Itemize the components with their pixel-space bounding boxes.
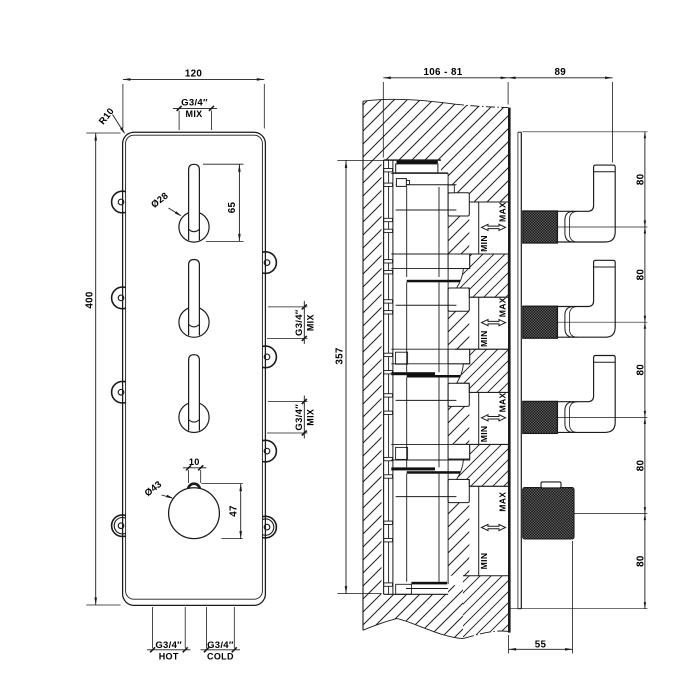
svg-text:357: 357 — [334, 347, 345, 364]
svg-text:89: 89 — [555, 67, 567, 78]
svg-text:MIN: MIN — [479, 553, 489, 570]
svg-text:55: 55 — [535, 640, 547, 651]
svg-text:MAX: MAX — [498, 202, 508, 222]
svg-text:80: 80 — [635, 364, 646, 376]
svg-text:MAX: MAX — [498, 492, 508, 512]
svg-text:106 - 81: 106 - 81 — [423, 67, 462, 78]
svg-text:MIN: MIN — [479, 330, 489, 347]
svg-text:G3/4″: G3/4″ — [294, 309, 305, 336]
svg-text:80: 80 — [635, 173, 646, 185]
svg-text:120: 120 — [185, 69, 202, 80]
svg-text:MIN: MIN — [479, 426, 489, 443]
svg-text:HOT: HOT — [159, 652, 179, 662]
svg-text:G3/4″: G3/4″ — [181, 98, 208, 109]
svg-text:MIX: MIX — [305, 314, 315, 331]
svg-text:G3/4″: G3/4″ — [294, 404, 305, 431]
svg-text:80: 80 — [635, 460, 646, 472]
svg-text:400: 400 — [84, 291, 95, 308]
svg-text:MAX: MAX — [498, 297, 508, 317]
svg-text:MAX: MAX — [498, 392, 508, 412]
svg-text:MIX: MIX — [305, 409, 315, 426]
svg-text:MIN: MIN — [479, 235, 489, 252]
svg-text:47: 47 — [229, 505, 240, 517]
svg-text:65: 65 — [227, 202, 238, 214]
svg-text:80: 80 — [635, 555, 646, 567]
svg-text:MIX: MIX — [186, 109, 203, 119]
svg-text:80: 80 — [635, 269, 646, 281]
svg-text:COLD: COLD — [207, 652, 234, 662]
